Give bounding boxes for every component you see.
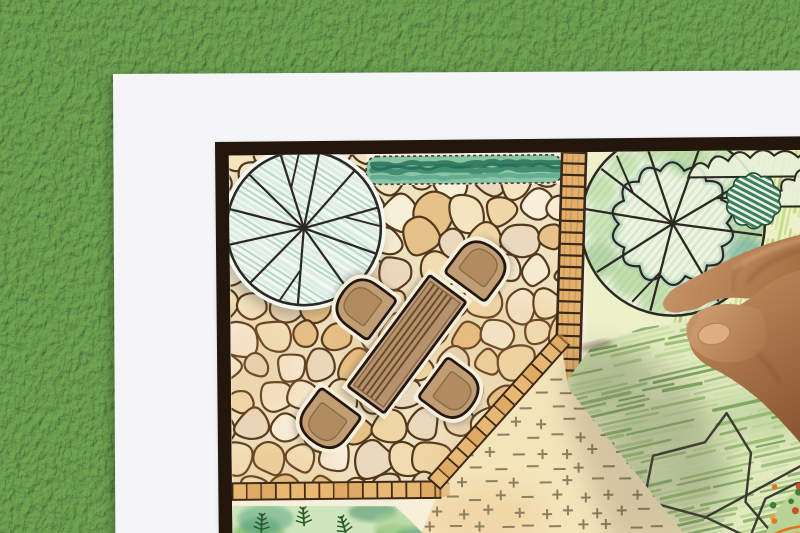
garden-plan-photo-scene <box>0 0 800 533</box>
garden-hedge <box>366 155 564 185</box>
